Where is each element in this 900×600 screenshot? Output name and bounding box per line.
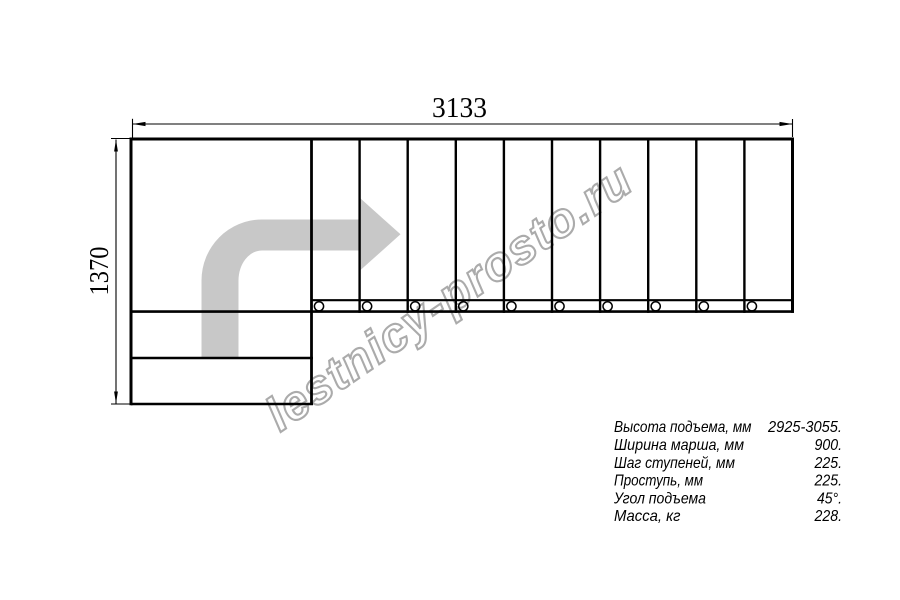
svg-text:Проступь, мм: Проступь, мм bbox=[614, 473, 703, 490]
svg-text:228.: 228. bbox=[814, 508, 842, 525]
svg-text:Шаг ступеней, мм: Шаг ступеней, мм bbox=[614, 455, 735, 472]
svg-text:2925-3055.: 2925-3055. bbox=[767, 419, 842, 436]
svg-text:900.: 900. bbox=[815, 437, 843, 454]
svg-text:225.: 225. bbox=[814, 455, 842, 472]
svg-text:3133: 3133 bbox=[432, 93, 487, 124]
svg-text:Высота подъема, мм: Высота подъема, мм bbox=[614, 419, 752, 436]
svg-text:1370: 1370 bbox=[84, 247, 114, 296]
svg-text:Ширина марша, мм: Ширина марша, мм bbox=[614, 437, 744, 454]
svg-text:45°.: 45°. bbox=[817, 490, 842, 507]
svg-text:Угол подъема: Угол подъема bbox=[613, 490, 706, 507]
svg-text:Масса, кг: Масса, кг bbox=[614, 508, 681, 525]
svg-text:225.: 225. bbox=[814, 473, 842, 490]
